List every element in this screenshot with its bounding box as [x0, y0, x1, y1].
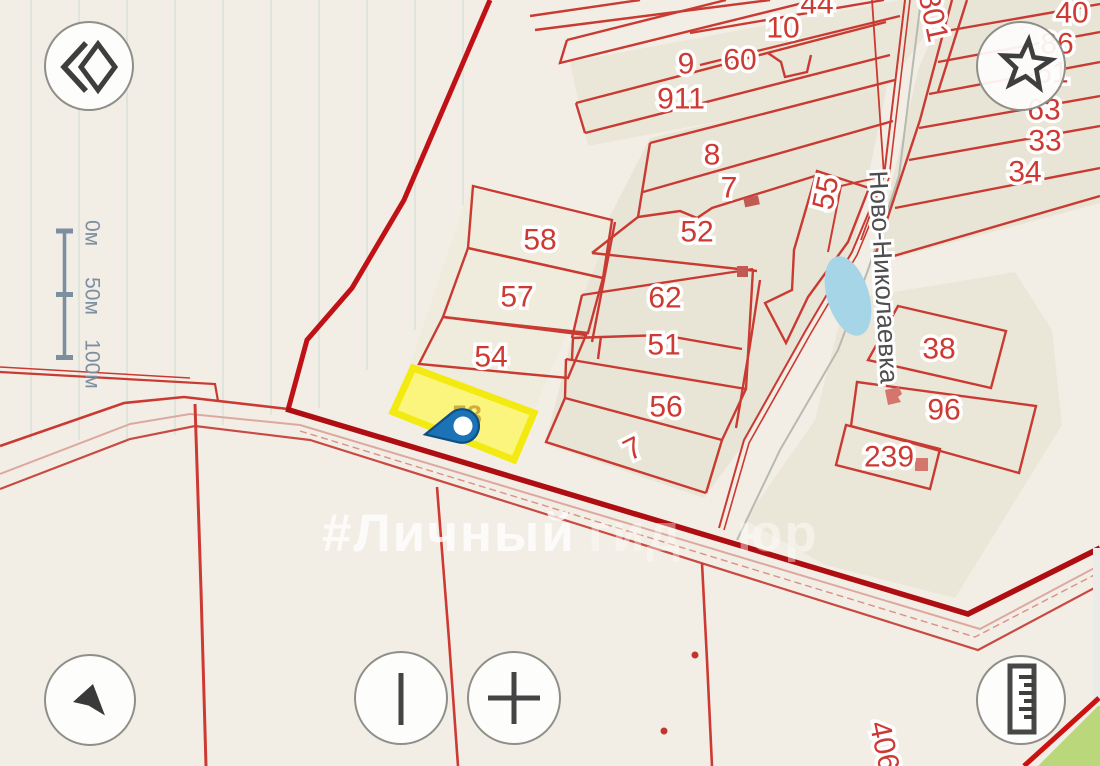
- svg-text:58: 58: [523, 224, 556, 257]
- svg-text:33: 33: [1028, 125, 1061, 158]
- svg-text:51: 51: [647, 329, 680, 362]
- svg-text:239: 239: [864, 441, 914, 474]
- svg-text:56: 56: [649, 391, 682, 424]
- svg-text:0м: 0м: [81, 220, 104, 246]
- svg-text:54: 54: [474, 341, 507, 374]
- svg-text:911: 911: [657, 83, 705, 116]
- svg-text:60: 60: [723, 44, 756, 77]
- svg-text:57: 57: [500, 281, 533, 314]
- svg-text:8: 8: [704, 139, 721, 172]
- svg-text:44: 44: [800, 0, 833, 21]
- svg-text:62: 62: [648, 282, 681, 315]
- svg-text:100м: 100м: [81, 339, 104, 388]
- svg-text:38: 38: [922, 333, 955, 366]
- svg-text:96: 96: [927, 394, 960, 427]
- svg-text:50м: 50м: [81, 277, 104, 315]
- svg-text:40: 40: [1055, 0, 1088, 30]
- svg-text:9: 9: [678, 48, 695, 81]
- svg-text:10: 10: [766, 12, 799, 45]
- svg-text:52: 52: [680, 216, 713, 249]
- svg-text:юр: юр: [737, 504, 819, 563]
- svg-text:гид: гид: [588, 504, 682, 563]
- svg-text:34: 34: [1008, 156, 1041, 189]
- svg-text:55: 55: [806, 173, 845, 213]
- svg-text:7: 7: [721, 172, 738, 205]
- svg-text:#Личный: #Личный: [322, 504, 576, 563]
